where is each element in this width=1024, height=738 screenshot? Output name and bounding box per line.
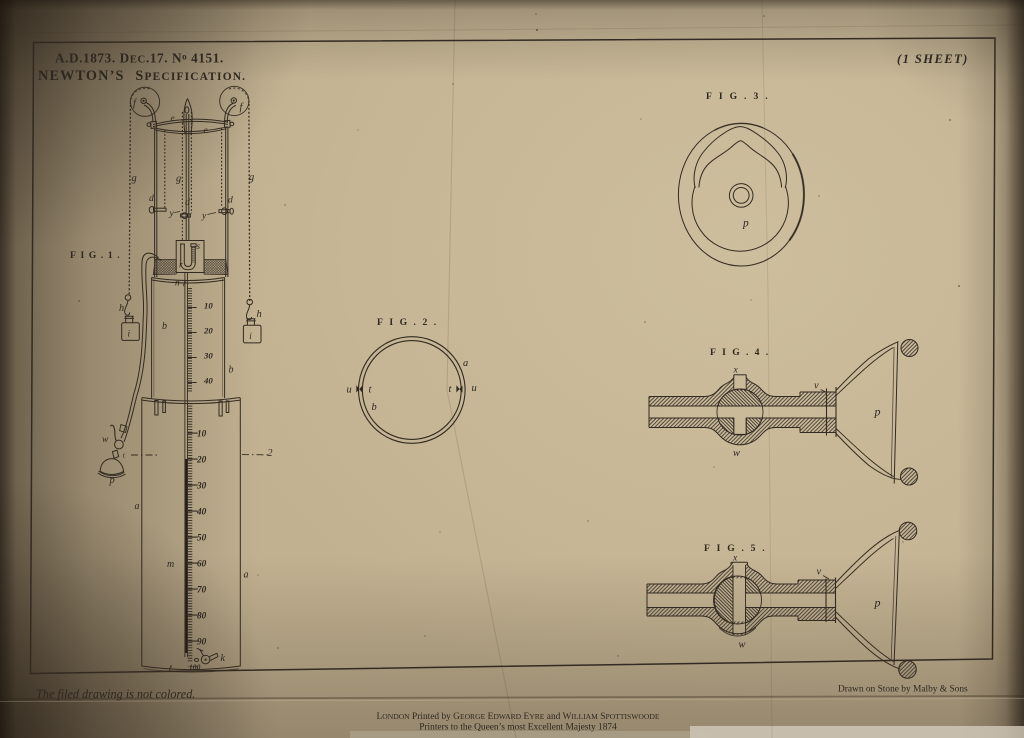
svg-text:e: e xyxy=(171,114,175,124)
svg-text:x: x xyxy=(733,365,739,376)
svg-text:d: d xyxy=(228,195,233,206)
svg-text:10: 10 xyxy=(197,429,207,439)
svg-text:r: r xyxy=(179,260,183,270)
svg-text:A.D.1873. DEC.17. No 4151.: A.D.1873. DEC.17. No 4151. xyxy=(55,51,224,66)
svg-text:(1 SHEET): (1 SHEET) xyxy=(897,52,969,66)
svg-text:m: m xyxy=(167,559,174,570)
svg-text:70: 70 xyxy=(197,585,207,595)
svg-text:40: 40 xyxy=(203,376,213,386)
svg-text:FIG.3.: FIG.3. xyxy=(706,91,775,102)
svg-text:s: s xyxy=(197,241,201,251)
svg-text:Drawn on Stone by Malby & Sons: Drawn on Stone by Malby & Sons xyxy=(838,685,968,695)
svg-text:w: w xyxy=(739,640,746,651)
svg-text:50: 50 xyxy=(197,533,207,543)
svg-text:FIG.1.: FIG.1. xyxy=(70,250,124,261)
svg-text:20: 20 xyxy=(203,326,213,336)
svg-text:n: n xyxy=(175,278,180,288)
svg-text:x: x xyxy=(732,553,738,564)
svg-text:y: y xyxy=(169,208,175,219)
svg-text:h: h xyxy=(119,303,124,314)
svg-text:LONDON Printed by GEORGE EDWA: LONDON Printed by GEORGE EDWARD EYRE and… xyxy=(377,712,660,722)
svg-text:90: 90 xyxy=(197,637,207,647)
svg-text:80: 80 xyxy=(197,611,207,621)
svg-text:g: g xyxy=(249,172,254,183)
svg-text:w: w xyxy=(102,435,109,445)
svg-text:p: p xyxy=(742,218,749,230)
svg-text:b: b xyxy=(162,321,167,332)
svg-text:20: 20 xyxy=(196,455,207,465)
svg-text:FIG.4.: FIG.4. xyxy=(710,347,774,358)
svg-text:g: g xyxy=(176,174,181,185)
svg-text:u: u xyxy=(472,383,477,394)
svg-text:a: a xyxy=(135,501,140,512)
svg-text:p: p xyxy=(109,475,115,486)
svg-text:d: d xyxy=(149,193,154,204)
svg-text:Printers to the Queen’s most E: Printers to the Queen’s most Excellent M… xyxy=(419,723,617,733)
svg-text:NEWTON’S SPECIFICATION.: NEWTON’S SPECIFICATION. xyxy=(38,68,246,84)
svg-text:y: y xyxy=(201,211,207,222)
svg-text:a: a xyxy=(463,358,468,369)
svg-text:d: d xyxy=(185,197,190,208)
svg-text:v: v xyxy=(817,567,822,578)
svg-text:2: 2 xyxy=(268,448,273,459)
svg-text:e: e xyxy=(204,126,208,136)
svg-text:100: 100 xyxy=(189,663,201,672)
svg-text:u: u xyxy=(347,385,352,396)
svg-text:p: p xyxy=(874,596,881,610)
svg-text:30: 30 xyxy=(203,351,213,361)
svg-text:h: h xyxy=(257,309,262,320)
svg-text:FIG.2.: FIG.2. xyxy=(377,317,443,328)
svg-text:ℓ: ℓ xyxy=(169,663,173,673)
svg-text:b: b xyxy=(372,402,377,413)
svg-text:40: 40 xyxy=(196,507,207,517)
svg-text:The filed drawing is not color: The filed drawing is not colored. xyxy=(36,687,195,701)
svg-text:p: p xyxy=(874,405,881,419)
svg-text:w: w xyxy=(733,448,740,459)
svg-text:v: v xyxy=(814,381,819,392)
svg-text:60: 60 xyxy=(197,559,207,569)
svg-text:g: g xyxy=(132,173,137,184)
svg-text:30: 30 xyxy=(196,481,207,491)
svg-text:10: 10 xyxy=(204,301,213,311)
svg-text:b: b xyxy=(229,365,234,376)
svg-text:a: a xyxy=(244,570,249,581)
svg-text:FIG.5.: FIG.5. xyxy=(704,543,771,554)
svg-text:k: k xyxy=(221,653,226,664)
